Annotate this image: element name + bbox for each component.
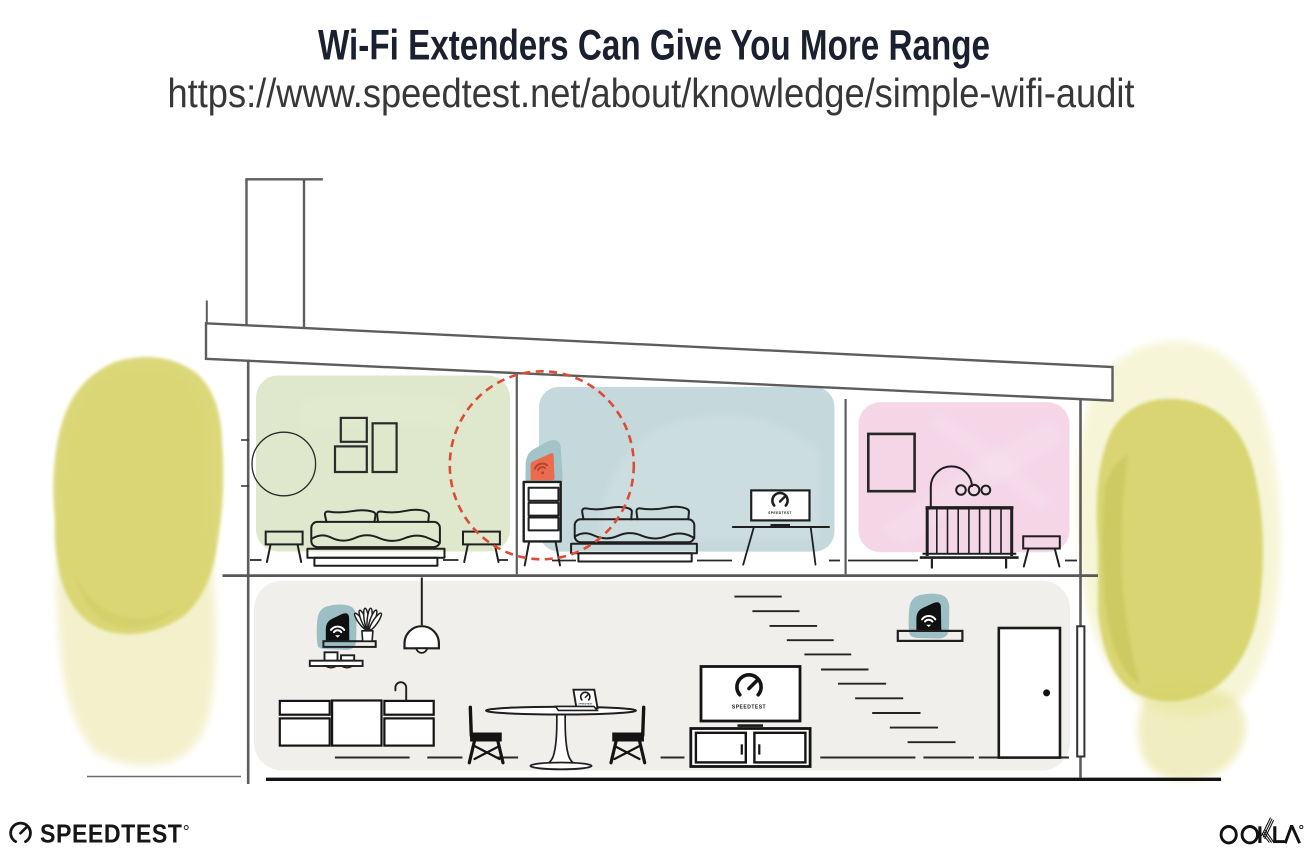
svg-text:SPEEDTEST: SPEEDTEST [40,821,183,849]
svg-text:SPEEDTEST: SPEEDTEST [578,704,593,706]
svg-text:https://www.speedtest.net/abou: https://www.speedtest.net/about/knowledg… [168,70,1135,116]
svg-text:SPEEDTEST: SPEEDTEST [768,511,792,515]
svg-text:Wi-Fi Extenders Can Give You M: Wi-Fi Extenders Can Give You More Range [318,22,990,70]
svg-text:SPEEDTEST: SPEEDTEST [732,705,766,711]
